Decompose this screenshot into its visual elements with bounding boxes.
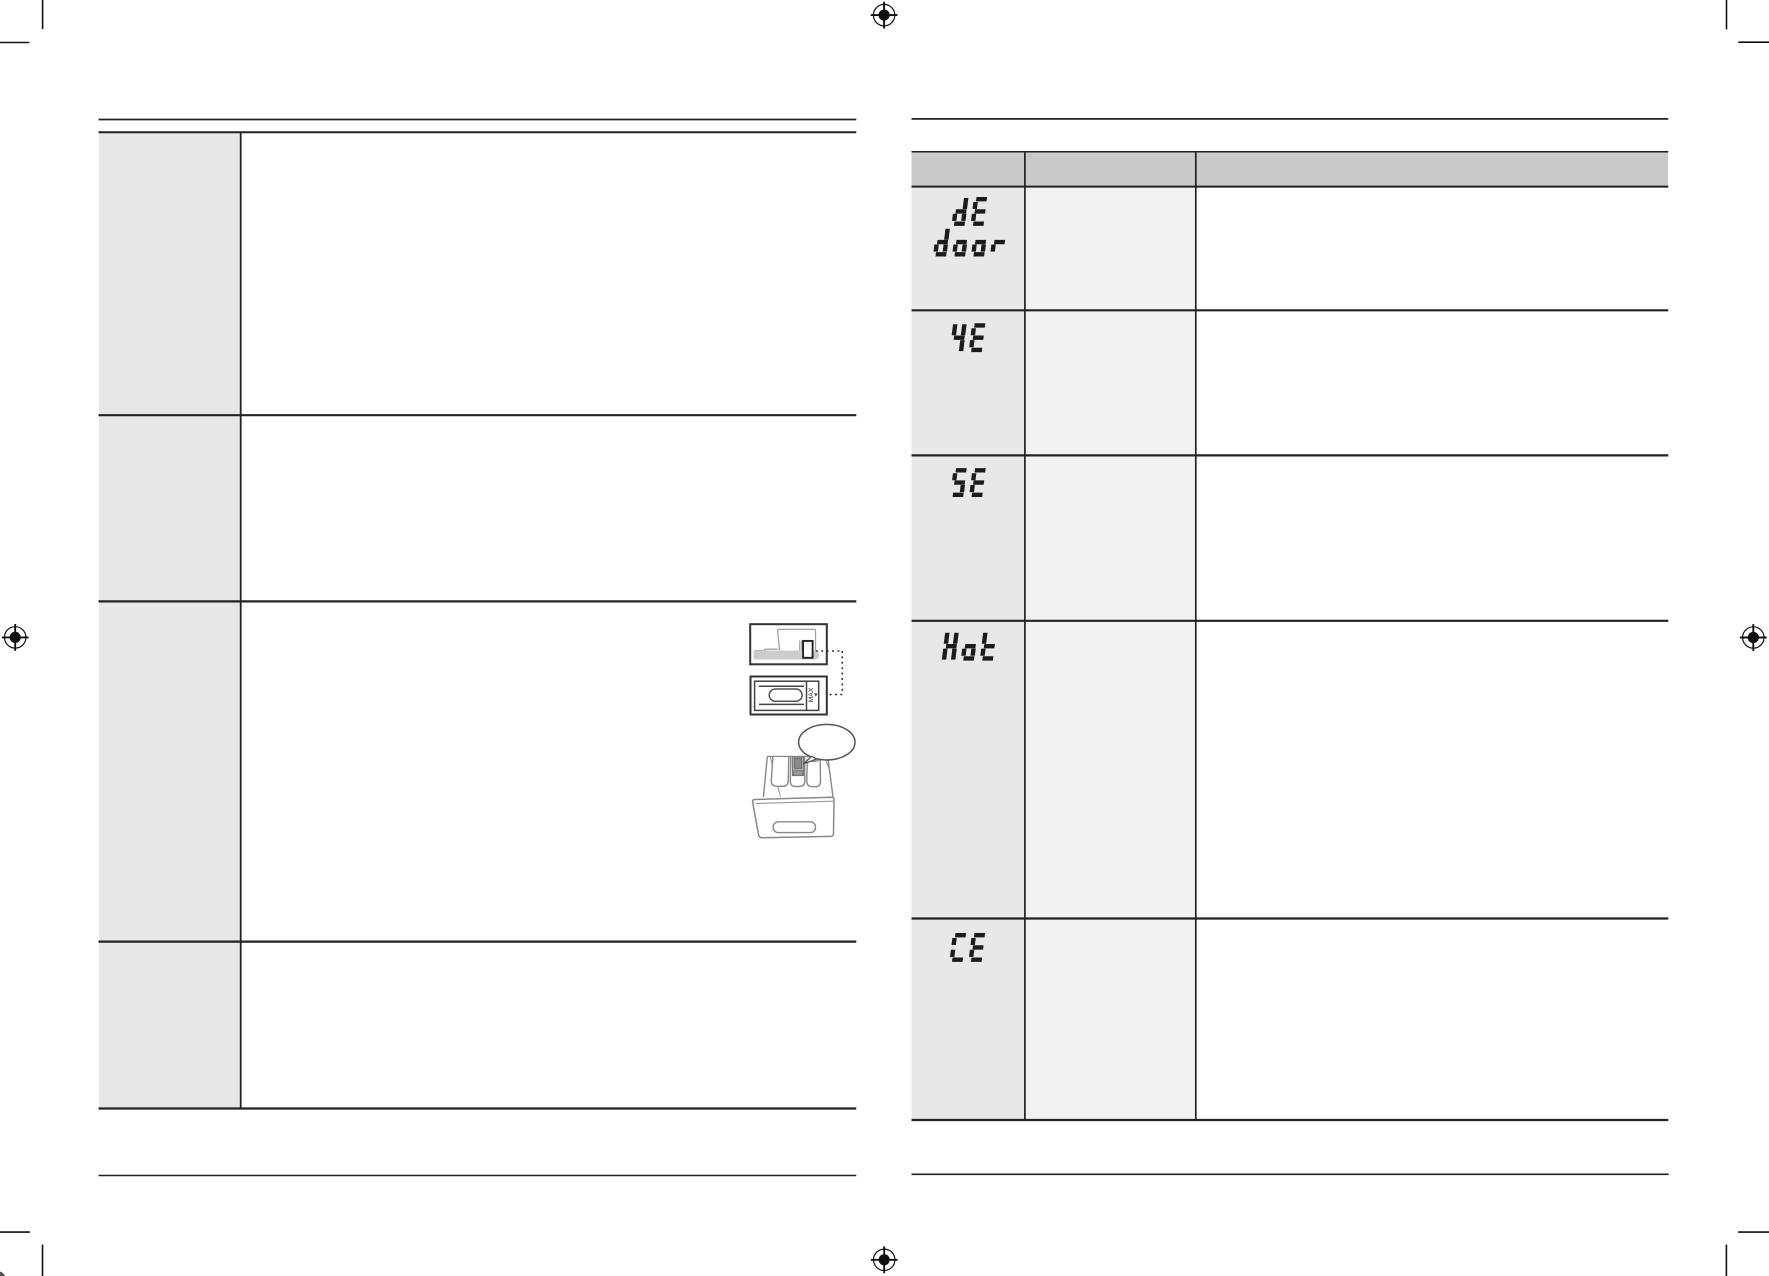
svg-text:▼: ▼ — [813, 693, 818, 699]
